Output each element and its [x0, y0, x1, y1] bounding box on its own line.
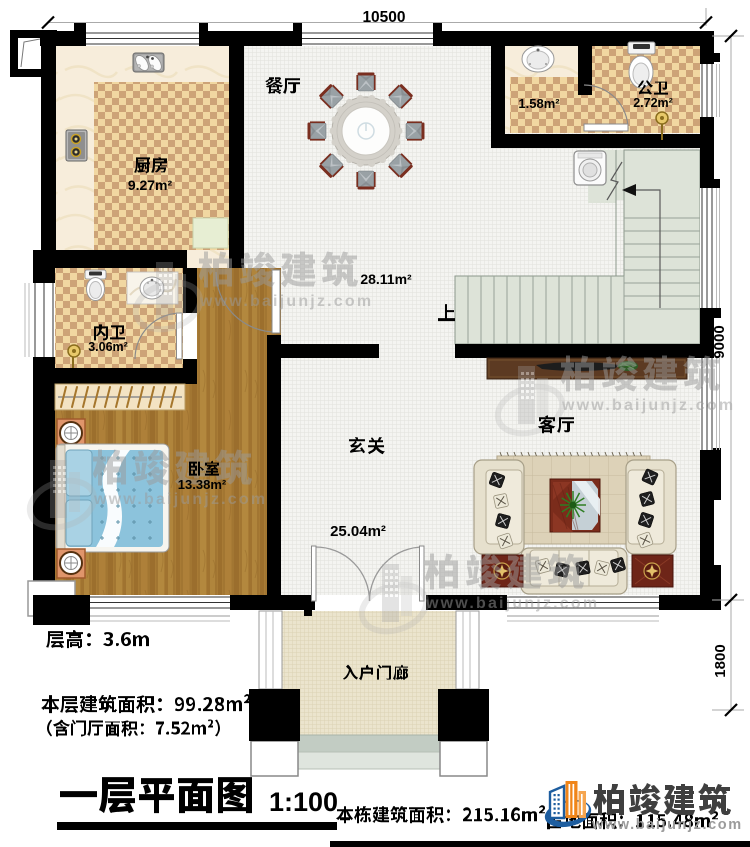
svg-text:9000: 9000: [711, 325, 728, 358]
svg-text:3.06m²: 3.06m²: [88, 340, 128, 354]
svg-text:13.38m²: 13.38m²: [178, 477, 227, 492]
svg-text:www.baijunjz.com: www.baijunjz.com: [199, 293, 373, 310]
svg-text:www.baijunjz.com: www.baijunjz.com: [425, 595, 599, 612]
svg-text:1:100: 1:100: [269, 787, 338, 817]
svg-text:28.11m²: 28.11m²: [360, 271, 412, 287]
svg-text:10500: 10500: [362, 9, 405, 26]
svg-text:25.04m²: 25.04m²: [330, 523, 386, 540]
svg-text:www.baijunjz.com: www.baijunjz.com: [561, 397, 735, 414]
svg-text:9.27m²: 9.27m²: [128, 177, 173, 193]
svg-text:www.baijunjz.com: www.baijunjz.com: [591, 817, 743, 833]
svg-text:2.72m²: 2.72m²: [633, 96, 673, 110]
svg-text:www.baijunjz.com: www.baijunjz.com: [93, 491, 267, 508]
svg-text:1800: 1800: [712, 644, 729, 677]
svg-text:1.58m²: 1.58m²: [518, 96, 560, 111]
